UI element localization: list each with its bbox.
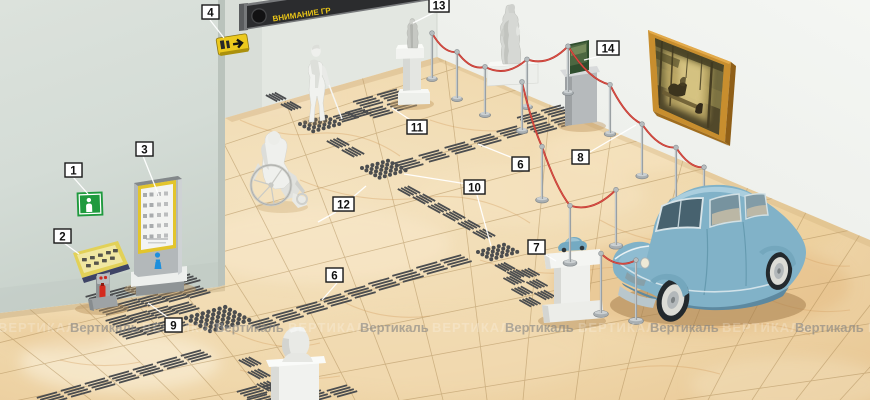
svg-text:7: 7 xyxy=(533,242,539,254)
svg-text:2: 2 xyxy=(59,231,65,243)
svg-text:3: 3 xyxy=(141,144,147,156)
svg-text:Вертикаль: Вертикаль xyxy=(70,320,139,335)
svg-text:14: 14 xyxy=(602,43,615,55)
svg-text:1: 1 xyxy=(70,165,77,177)
svg-text:6: 6 xyxy=(331,270,337,282)
svg-text:10: 10 xyxy=(468,182,481,194)
svg-text:Вертикаль: Вертикаль xyxy=(650,320,719,335)
svg-text:6: 6 xyxy=(517,159,523,171)
svg-text:Вертикаль: Вертикаль xyxy=(505,320,574,335)
svg-text:Вертикаль: Вертикаль xyxy=(795,320,864,335)
svg-text:Вертикаль: Вертикаль xyxy=(360,320,429,335)
svg-text:12: 12 xyxy=(337,199,350,211)
svg-text:4: 4 xyxy=(207,7,214,19)
svg-text:Вертикаль: Вертикаль xyxy=(215,320,284,335)
svg-text:13: 13 xyxy=(433,0,446,12)
svg-text:9: 9 xyxy=(170,320,176,332)
svg-text:8: 8 xyxy=(577,152,584,164)
svg-text:11: 11 xyxy=(411,122,424,134)
